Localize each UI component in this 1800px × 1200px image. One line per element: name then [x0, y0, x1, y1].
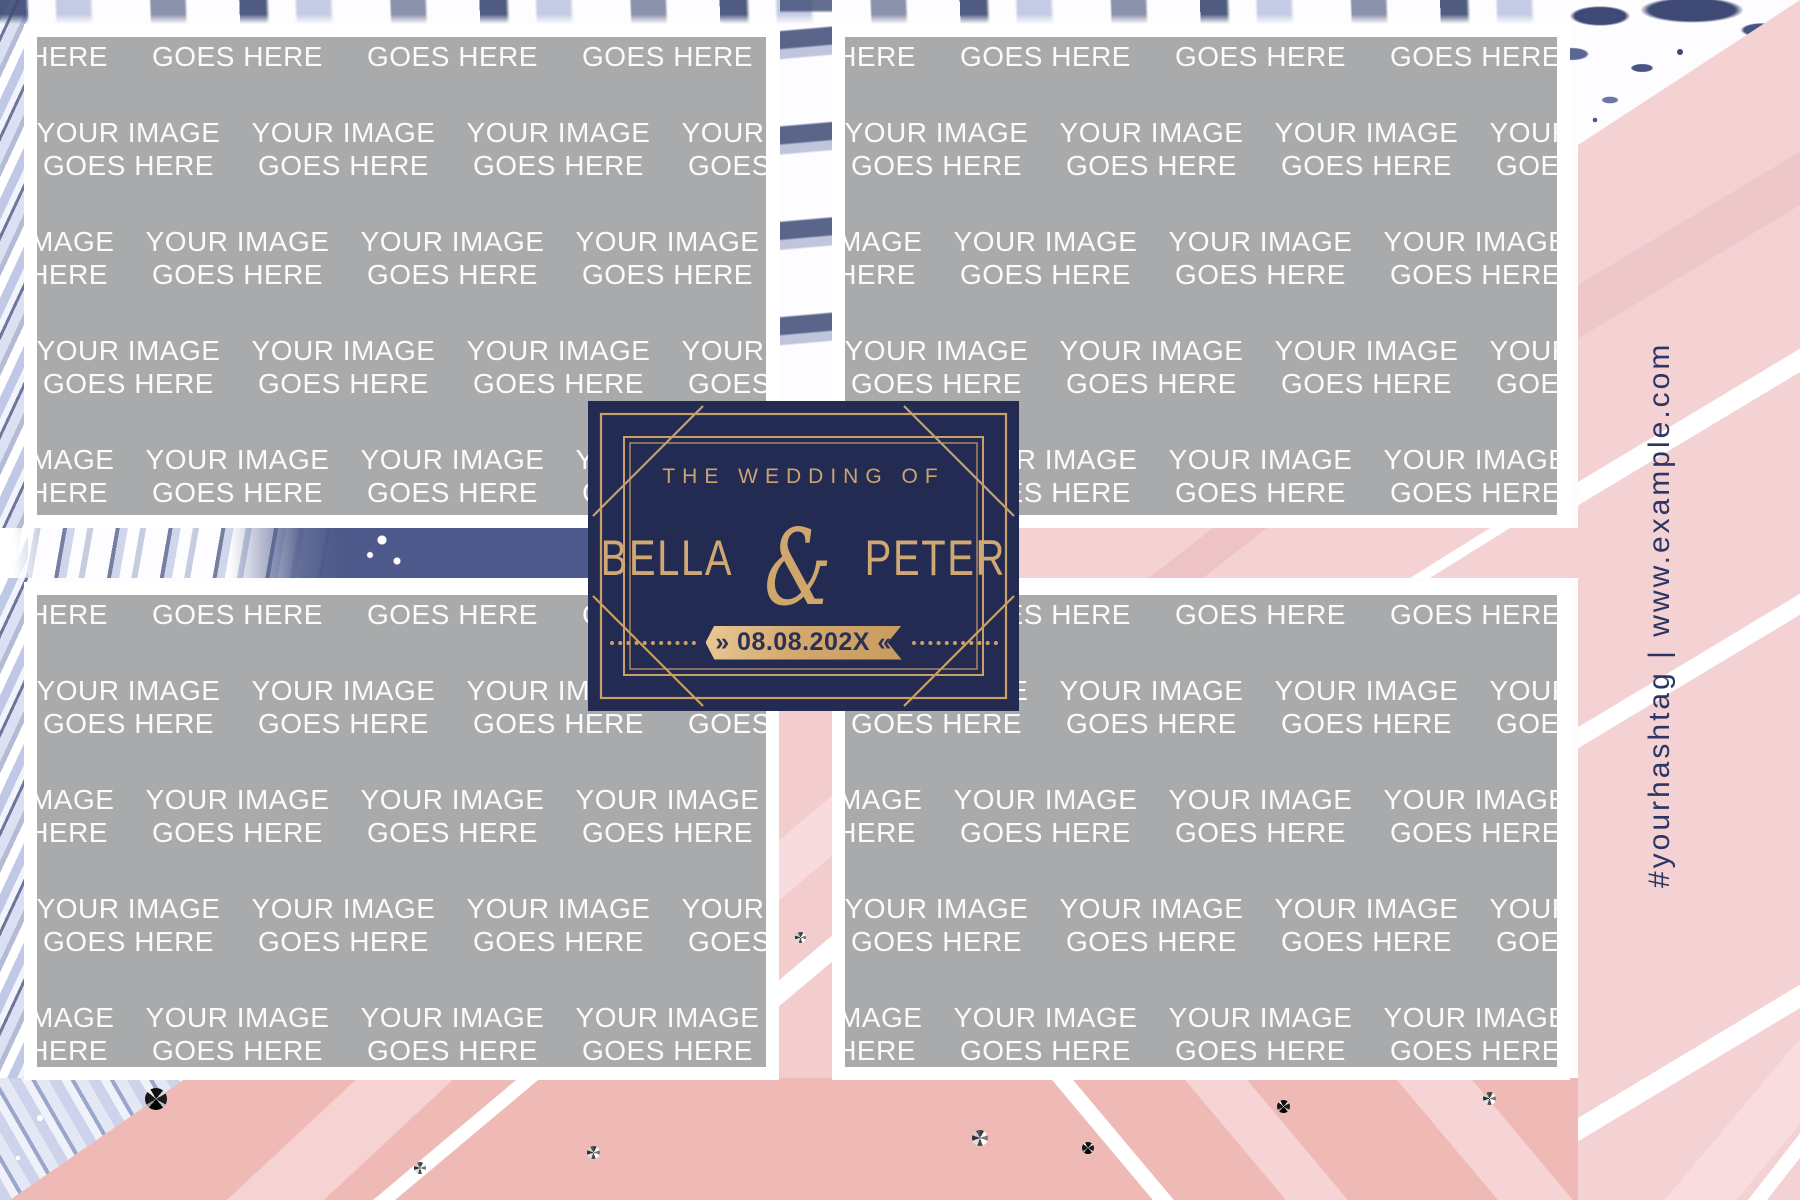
glitter-sequin: [795, 932, 806, 943]
placeholder-text: YOUR IMAGEGOES HERE: [845, 783, 938, 849]
placeholder-row: YOUR IMAGEGOES HEREYOUR IMAGEGOES HEREYO…: [845, 783, 1557, 849]
placeholder-text: YOUR IMAGEGOES HERE: [1259, 674, 1474, 740]
placeholder-text: YOUR IMAGEGOES HERE: [1474, 334, 1557, 400]
glitter-sequin: [145, 1088, 167, 1110]
glitter-sequin: [414, 1162, 426, 1174]
placeholder-row: YOUR IMAGEGOES HEREYOUR IMAGEGOES HEREYO…: [845, 225, 1557, 291]
placeholder-text: YOUR IMAGEGOES HERE: [560, 225, 766, 291]
placeholder-row: YOUR IMAGEGOES HEREYOUR IMAGEGOES HEREYO…: [37, 892, 766, 958]
placeholder-text: YOUR IMAGEGOES HERE: [1153, 37, 1368, 73]
placeholder-text: YOUR IMAGEGOES HERE: [938, 1001, 1153, 1067]
placeholder-text: YOUR IMAGEGOES HERE: [345, 443, 560, 509]
placeholder-text: YOUR IMAGEGOES HERE: [1259, 334, 1474, 400]
placeholder-row: YOUR IMAGEGOES HEREYOUR IMAGEGOES HEREYO…: [37, 783, 766, 849]
placeholder-text: YOUR IMAGEGOES HERE: [451, 116, 666, 182]
placeholder-text: YOUR IMAGEGOES HERE: [1153, 1001, 1368, 1067]
placeholder-text: YOUR IMAGEGOES HERE: [1474, 674, 1557, 740]
placeholder-text: YOUR IMAGEGOES HERE: [938, 225, 1153, 291]
placeholder-text: YOUR IMAGEGOES HERE: [37, 116, 236, 182]
pink-sidebar-background: [1578, 0, 1800, 1200]
placeholder-row: YOUR IMAGEGOES HEREYOUR IMAGEGOES HEREYO…: [37, 334, 766, 400]
placeholder-row: YOUR IMAGEGOES HEREYOUR IMAGEGOES HEREYO…: [845, 1001, 1557, 1067]
placeholder-text: YOUR IMAGEGOES HERE: [37, 334, 236, 400]
groom-name: PETER: [864, 529, 1005, 587]
placeholder-text: YOUR IMAGEGOES HERE: [236, 892, 451, 958]
white-stripe: [1410, 528, 1510, 578]
pink-stripe: [779, 796, 832, 900]
placeholder-text: YOUR IMAGEGOES HERE: [845, 1001, 938, 1067]
wedding-badge: THE WEDDING OF BELLA & PETER » 08.08.202…: [588, 401, 1019, 711]
glitter-sequin: [587, 1146, 600, 1159]
placeholder-text: YOUR IMAGEGOES HERE: [1474, 116, 1557, 182]
marble-navy-band: [0, 528, 600, 578]
white-stripe: [779, 936, 832, 1006]
placeholder-text: YOUR IMAGEGOES HERE: [345, 1001, 560, 1067]
placeholder-row: YOUR IMAGEGOES HEREYOUR IMAGEGOES HEREYO…: [845, 892, 1557, 958]
placeholder-text: YOUR IMAGEGOES HERE: [1259, 116, 1474, 182]
placeholder-text: YOUR IMAGEGOES HERE: [845, 892, 1044, 958]
placeholder-text: YOUR IMAGEGOES HERE: [1368, 595, 1557, 631]
date-ribbon: » 08.08.202X «: [706, 626, 902, 660]
placeholder-text: YOUR IMAGEGOES HERE: [845, 225, 938, 291]
placeholder-row: YOUR IMAGEGOES HEREYOUR IMAGEGOES HEREYO…: [845, 334, 1557, 400]
placeholder-text: YOUR IMAGEGOES HERE: [666, 892, 766, 958]
placeholder-text: YOUR IMAGEGOES HERE: [1368, 443, 1557, 509]
pink-stripe: [1149, 528, 1267, 578]
pink-stripe: [1167, 1078, 1372, 1200]
placeholder-text: YOUR IMAGEGOES HERE: [37, 443, 130, 509]
placeholder-text: YOUR IMAGEGOES HERE: [236, 116, 451, 182]
pink-stripe: [1379, 1078, 1578, 1200]
white-stripe: [1578, 341, 1800, 513]
placeholder-text: YOUR IMAGEGOES HERE: [1044, 334, 1259, 400]
placeholder-text: YOUR IMAGEGOES HERE: [345, 595, 560, 631]
wedding-date: » 08.08.202X «: [715, 628, 892, 657]
placeholder-text: YOUR IMAGEGOES HERE: [845, 334, 1044, 400]
badge-eyebrow-text: THE WEDDING OF: [662, 465, 944, 489]
placeholder-text: YOUR IMAGEGOES HERE: [1368, 37, 1557, 73]
glitter-sequin: [1082, 1142, 1094, 1154]
bride-name: BELLA: [600, 529, 733, 587]
white-stripe: [1578, 586, 1800, 756]
placeholder-text: YOUR IMAGEGOES HERE: [1368, 225, 1557, 291]
placeholder-row: YOUR IMAGEGOES HEREYOUR IMAGEGOES HEREYO…: [37, 37, 766, 73]
placeholder-row: YOUR IMAGEGOES HEREYOUR IMAGEGOES HEREYO…: [845, 116, 1557, 182]
placeholder-text: YOUR IMAGEGOES HERE: [560, 37, 766, 73]
dotted-line-right: [912, 641, 998, 645]
placeholder-text: YOUR IMAGEGOES HERE: [1153, 443, 1368, 509]
placeholder-text: YOUR IMAGEGOES HERE: [451, 892, 666, 958]
placeholder-text: YOUR IMAGEGOES HERE: [345, 225, 560, 291]
placeholder-text: YOUR IMAGEGOES HERE: [1474, 892, 1557, 958]
placeholder-text: YOUR IMAGEGOES HERE: [37, 783, 130, 849]
placeholder-text: YOUR IMAGEGOES HERE: [130, 443, 345, 509]
wedding-template-canvas: YOUR IMAGEGOES HEREYOUR IMAGEGOES HEREYO…: [0, 0, 1800, 1200]
placeholder-text: YOUR IMAGEGOES HERE: [1153, 595, 1368, 631]
placeholder-text: YOUR IMAGEGOES HERE: [560, 1001, 766, 1067]
placeholder-text: YOUR IMAGEGOES HERE: [37, 37, 130, 73]
placeholder-text: YOUR IMAGEGOES HERE: [130, 225, 345, 291]
placeholder-row: YOUR IMAGEGOES HEREYOUR IMAGEGOES HEREYO…: [37, 1001, 766, 1067]
placeholder-text: YOUR IMAGEGOES HERE: [1044, 674, 1259, 740]
placeholder-text: YOUR IMAGEGOES HERE: [37, 892, 236, 958]
placeholder-text: YOUR IMAGEGOES HERE: [130, 595, 345, 631]
placeholder-text: YOUR IMAGEGOES HERE: [451, 334, 666, 400]
glitter-sequin: [972, 1130, 988, 1146]
placeholder-text: YOUR IMAGEGOES HERE: [37, 595, 130, 631]
placeholder-text: YOUR IMAGEGOES HERE: [130, 783, 345, 849]
placeholder-text: YOUR IMAGEGOES HERE: [236, 334, 451, 400]
placeholder-text: YOUR IMAGEGOES HERE: [1368, 1001, 1557, 1067]
placeholder-text: YOUR IMAGEGOES HERE: [1044, 892, 1259, 958]
placeholder-text: YOUR IMAGEGOES HERE: [1368, 783, 1557, 849]
placeholder-row: YOUR IMAGEGOES HEREYOUR IMAGEGOES HEREYO…: [845, 37, 1557, 73]
placeholder-text: YOUR IMAGEGOES HERE: [845, 116, 1044, 182]
glitter-sequin: [1277, 1100, 1290, 1113]
placeholder-text: YOUR IMAGEGOES HERE: [1153, 225, 1368, 291]
placeholder-text: YOUR IMAGEGOES HERE: [845, 37, 938, 73]
placeholder-text: YOUR IMAGEGOES HERE: [1153, 783, 1368, 849]
placeholder-row: YOUR IMAGEGOES HEREYOUR IMAGEGOES HEREYO…: [37, 116, 766, 182]
placeholder-text: YOUR IMAGEGOES HERE: [37, 674, 236, 740]
ampersand-glyph: &: [764, 521, 831, 616]
dotted-line-left: [610, 641, 696, 645]
badge-couple-names: BELLA & PETER: [584, 511, 1024, 606]
placeholder-text: YOUR IMAGEGOES HERE: [1259, 892, 1474, 958]
placeholder-row: YOUR IMAGEGOES HEREYOUR IMAGEGOES HEREYO…: [37, 225, 766, 291]
placeholder-text: YOUR IMAGEGOES HERE: [130, 37, 345, 73]
placeholder-text: YOUR IMAGEGOES HERE: [938, 783, 1153, 849]
placeholder-text: YOUR IMAGEGOES HERE: [345, 37, 560, 73]
pink-stripe: [197, 1078, 476, 1200]
placeholder-text: YOUR IMAGEGOES HERE: [1044, 116, 1259, 182]
placeholder-text: YOUR IMAGEGOES HERE: [560, 783, 766, 849]
glitter-sequin: [1483, 1092, 1496, 1105]
placeholder-text: YOUR IMAGEGOES HERE: [37, 225, 130, 291]
hashtag-url-vertical-text: #yourhashtag | www.example.com: [1638, 322, 1682, 907]
placeholder-text: YOUR IMAGEGOES HERE: [666, 116, 766, 182]
placeholder-text: YOUR IMAGEGOES HERE: [666, 334, 766, 400]
placeholder-text: YOUR IMAGEGOES HERE: [938, 37, 1153, 73]
placeholder-text: YOUR IMAGEGOES HERE: [130, 1001, 345, 1067]
pink-bottom-strip: [0, 1078, 1578, 1200]
white-stripe: [1034, 1078, 1198, 1200]
badge-date-row: » 08.08.202X «: [600, 626, 1008, 660]
placeholder-text: YOUR IMAGEGOES HERE: [345, 783, 560, 849]
placeholder-text: YOUR IMAGEGOES HERE: [37, 1001, 130, 1067]
pink-stripe: [1578, 148, 1800, 342]
placeholder-text: YOUR IMAGEGOES HERE: [236, 674, 451, 740]
